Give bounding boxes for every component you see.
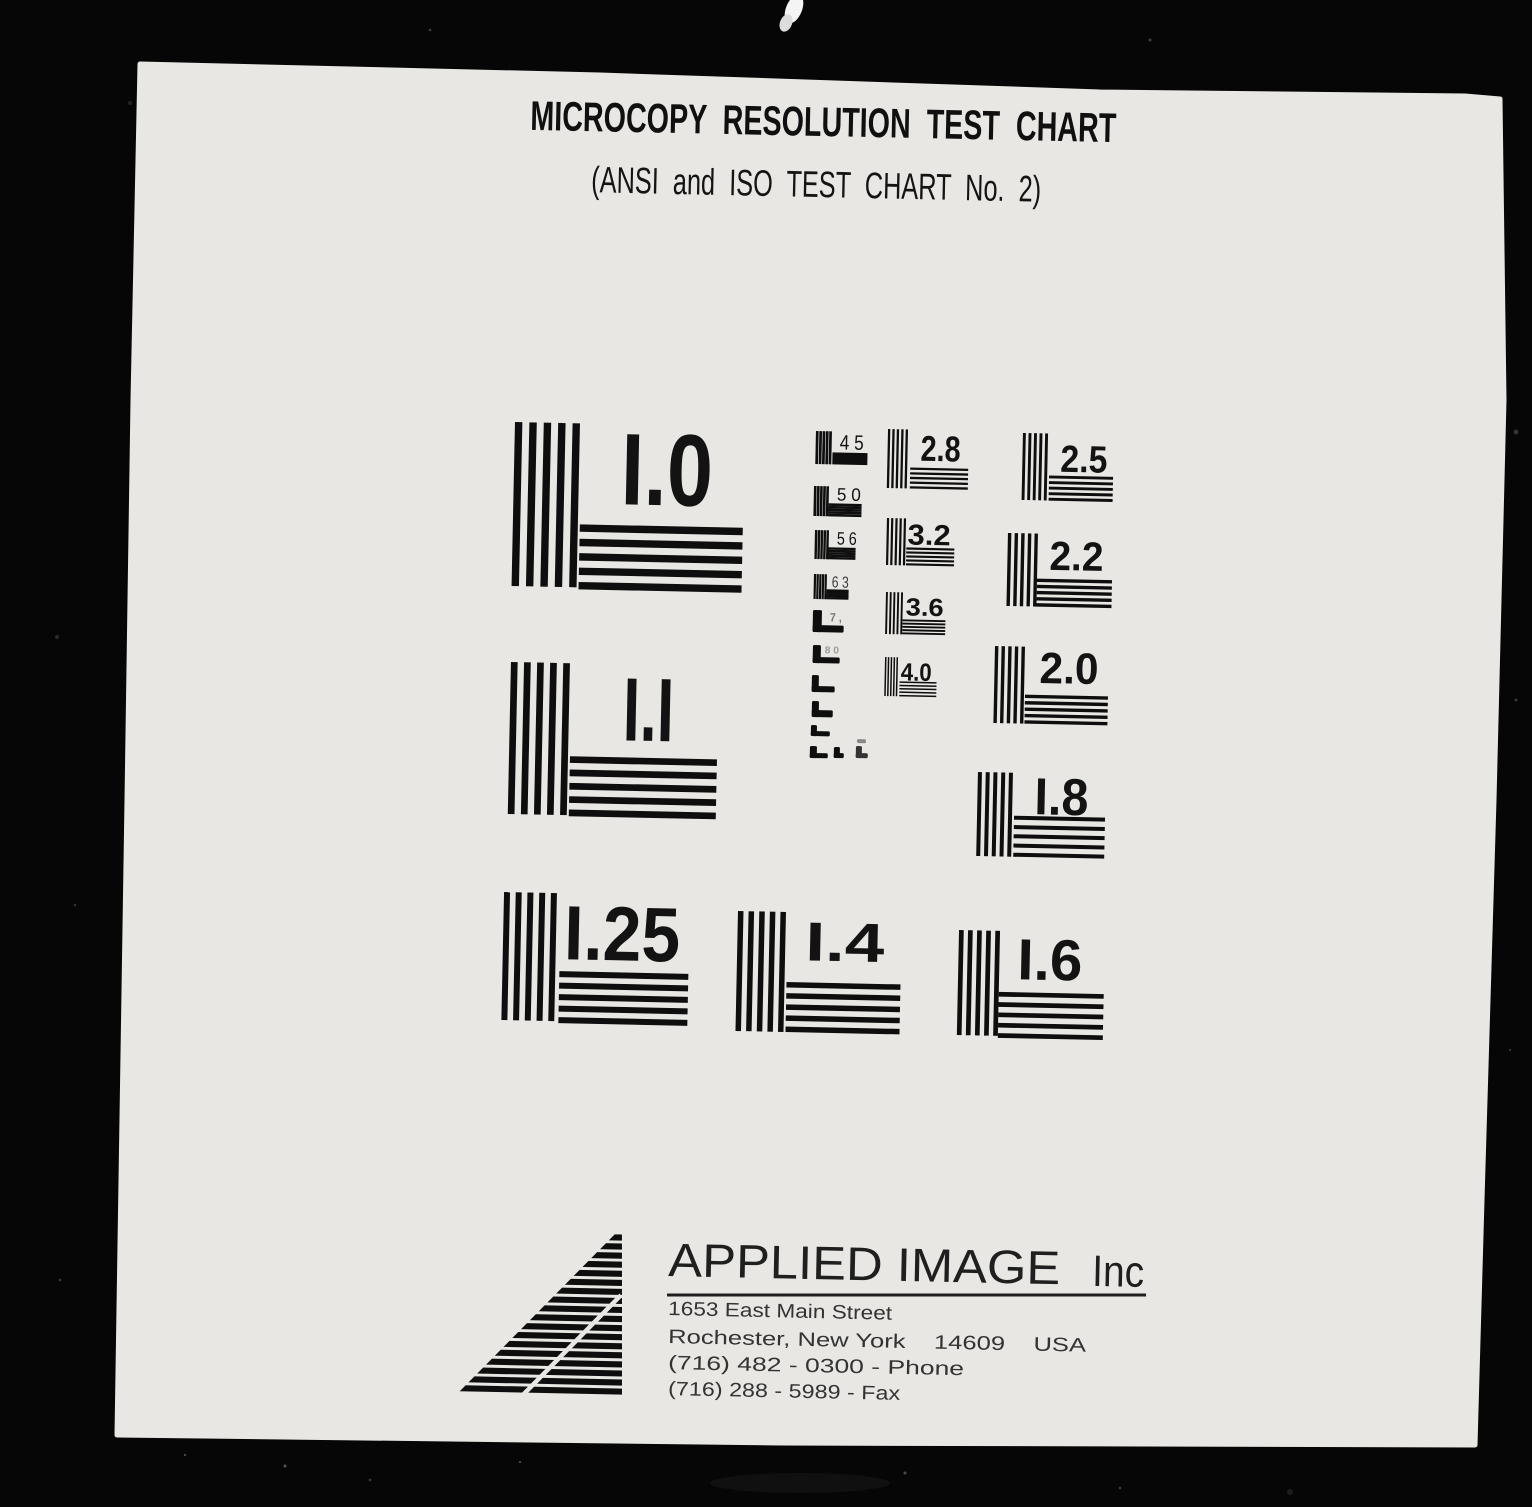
svg-text:5 0: 5 0 [837,484,861,504]
svg-text:2.8: 2.8 [920,428,961,470]
svg-text:I.I: I.I [622,660,675,761]
svg-text:6 3: 6 3 [832,574,849,591]
svg-text:I.6: I.6 [1017,927,1083,993]
svg-text:2.5: 2.5 [1060,439,1108,482]
svg-text:7 ,: 7 , [830,610,842,624]
svg-text:I.8: I.8 [1034,768,1089,827]
svg-text:3.2: 3.2 [907,519,951,552]
svg-text:8 0: 8 0 [825,645,840,656]
svg-text:2.0: 2.0 [1039,644,1099,694]
svg-text:4.0: 4.0 [900,658,932,687]
svg-text:4 5: 4 5 [839,432,863,455]
svg-text:I.4: I.4 [805,910,886,974]
svg-text:I.25: I.25 [563,890,681,978]
svg-text:3.6: 3.6 [905,593,944,622]
svg-text:1653 East Main Street: 1653 East Main Street [668,1298,893,1325]
svg-text:Inc: Inc [1092,1247,1145,1297]
svg-text:APPLIED IMAGE: APPLIED IMAGE [668,1233,1061,1294]
svg-text:I.0: I.0 [620,412,714,528]
svg-text:5 6: 5 6 [837,528,857,548]
svg-text:2.2: 2.2 [1049,533,1104,580]
